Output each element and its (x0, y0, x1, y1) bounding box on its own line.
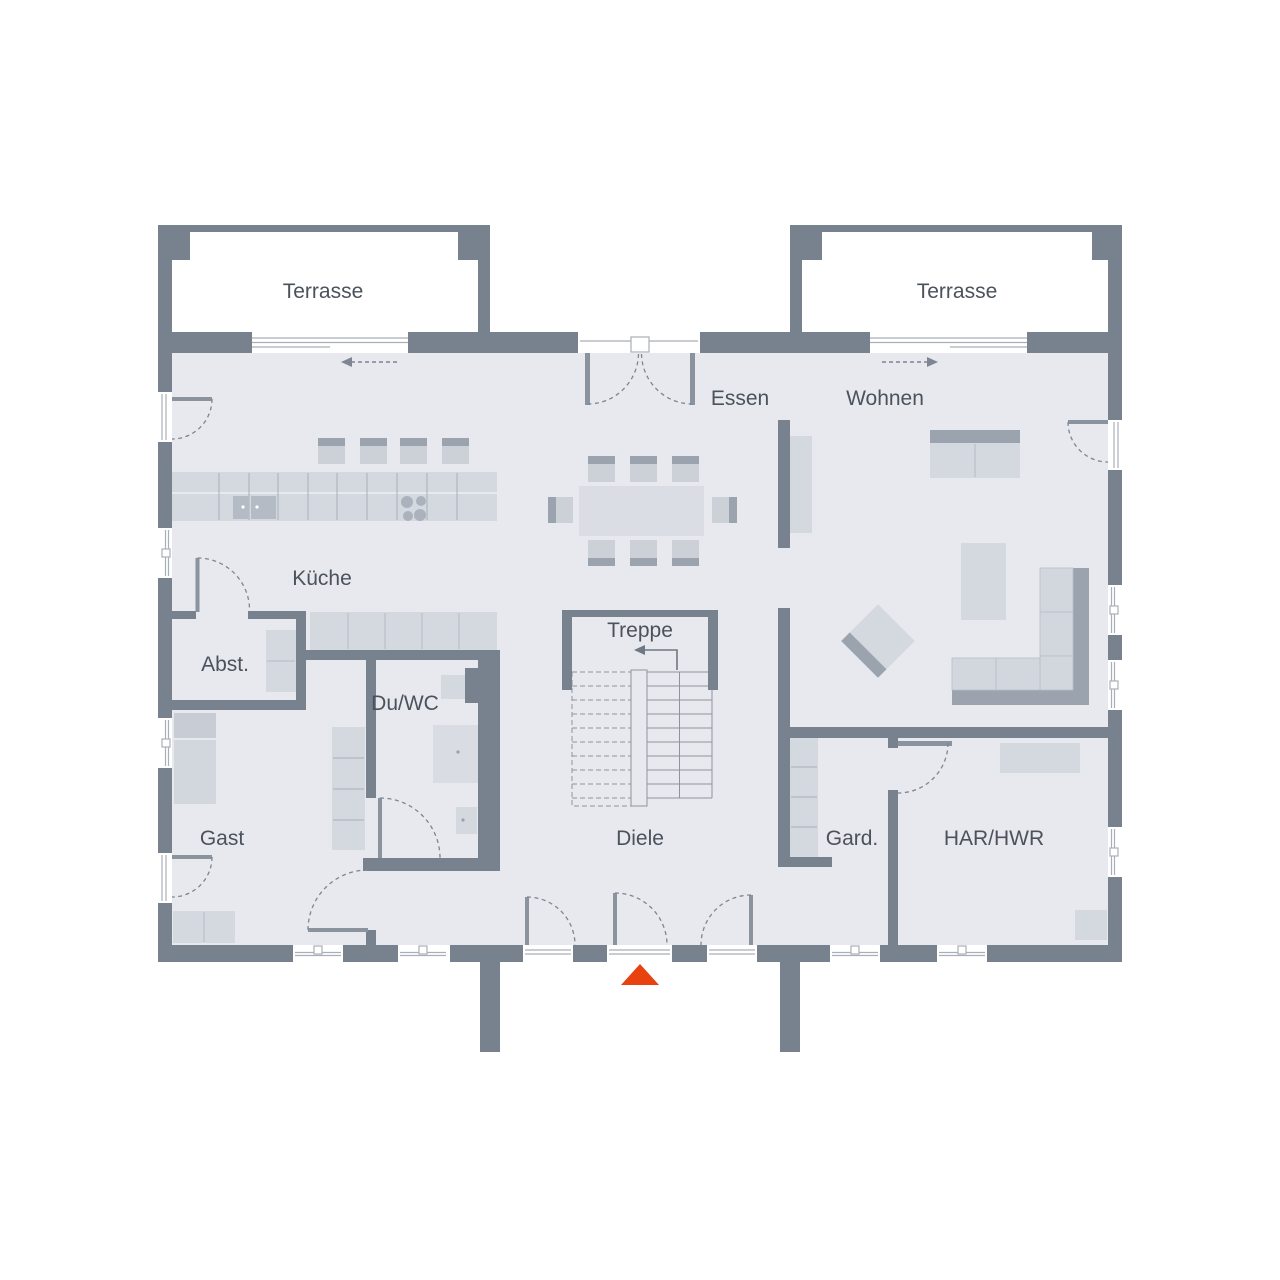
wc-icon (456, 807, 477, 834)
sink-icon (233, 496, 276, 519)
shelf-unit (790, 436, 812, 533)
label-terrasse-left: Terrasse (283, 280, 364, 303)
window (1108, 827, 1122, 877)
bed-icon (174, 713, 216, 804)
window (293, 945, 343, 962)
coffee-table (961, 543, 1006, 620)
label-gast: Gast (200, 827, 245, 850)
abst-shelf (266, 630, 296, 692)
label-terrasse-right: Terrasse (917, 280, 998, 303)
wardrobe (332, 727, 365, 850)
sideboard (173, 911, 235, 943)
label-gard: Gard. (826, 827, 879, 850)
floorplan-canvas: Terrasse Terrasse Essen Wohnen Küche Abs… (0, 0, 1280, 1280)
window (830, 945, 880, 962)
window (398, 945, 448, 962)
label-kueche: Küche (292, 567, 352, 590)
washbasin-icon (441, 675, 465, 699)
window (158, 718, 172, 768)
window (1108, 660, 1122, 710)
window (937, 945, 987, 962)
label-abst: Abst. (201, 653, 249, 676)
garderobe-wardrobe (790, 737, 818, 857)
label-essen: Essen (711, 387, 769, 410)
label-treppe: Treppe (607, 619, 673, 642)
shower-icon (433, 725, 478, 783)
label-duwc: Du/WC (371, 692, 439, 715)
dining-table (579, 486, 704, 536)
label-har-hwr: HAR/HWR (944, 827, 1044, 850)
label-wohnen: Wohnen (846, 387, 924, 410)
shelf (1000, 743, 1080, 773)
window (1108, 585, 1122, 635)
tv-sideboard (930, 430, 1020, 478)
label-diele: Diele (616, 827, 664, 850)
appliance (1075, 910, 1107, 940)
window (158, 528, 172, 578)
